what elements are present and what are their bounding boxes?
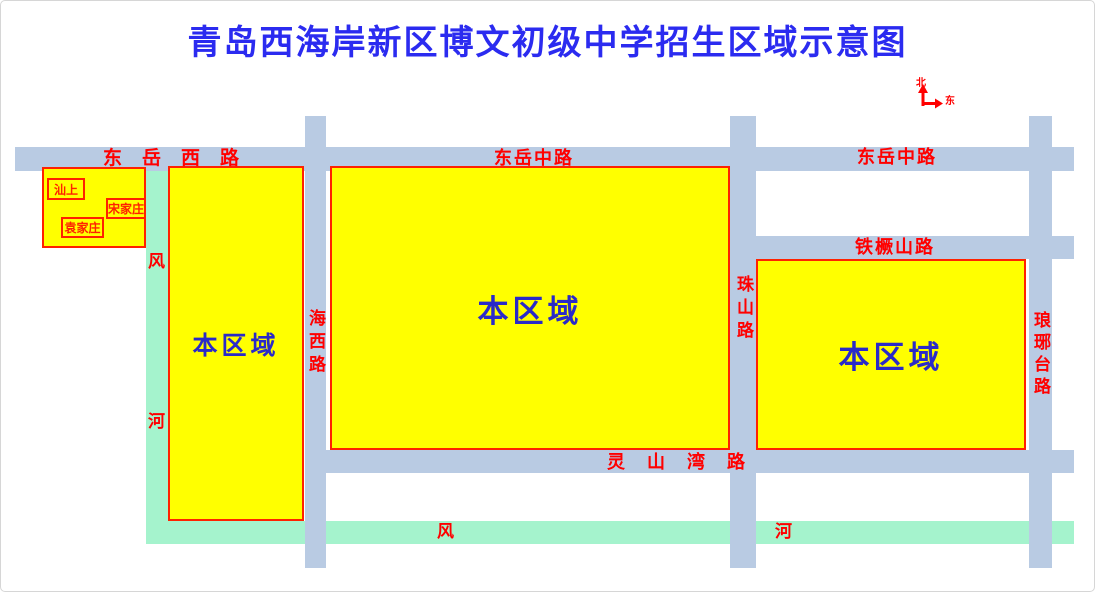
- road-label-lingshanwan: 灵山湾路: [607, 454, 767, 472]
- zone-middle-label: 本区域: [478, 286, 583, 331]
- village-shanshang-label: 汕上: [54, 181, 78, 198]
- road-label-dongyue-zhong-mid: 东岳中路: [494, 150, 574, 168]
- zone-left-label: 本区域: [192, 326, 279, 362]
- villages-cluster: 汕上 宋家庄 袁家庄: [42, 167, 146, 248]
- zone-left: 本区域: [168, 166, 304, 521]
- river-label-feng-left: 风: [148, 254, 165, 271]
- fenghe-river-horizontal: [146, 521, 1074, 544]
- road-label-langyatai: 琅琊台路: [1031, 311, 1048, 399]
- road-label-dongyue-xi: 东岳西路: [103, 149, 259, 168]
- page-title: 青岛西海岸新区博文初级中学招生区域示意图: [1, 15, 1094, 64]
- village-songjiazhuang-label: 宋家庄: [108, 200, 144, 217]
- river-label-feng-bottom: 风: [437, 524, 454, 541]
- zone-right: 本区域: [756, 259, 1026, 450]
- fenghe-river-vertical: [146, 171, 168, 544]
- road-label-dongyue-zhong-right: 东岳中路: [857, 149, 937, 167]
- village-yuanjiazhuang-label: 袁家庄: [64, 219, 100, 236]
- river-label-he-bottom: 河: [775, 524, 792, 541]
- village-songjiazhuang: 宋家庄: [106, 198, 146, 219]
- road-label-haixi: 海西路: [306, 309, 323, 378]
- village-yuanjiazhuang: 袁家庄: [61, 217, 104, 238]
- compass: 北 东: [901, 75, 961, 120]
- road-label-zhushan: 珠山路: [734, 275, 751, 344]
- village-shanshang: 汕上: [47, 178, 85, 200]
- road-label-tiejueshan: 铁橛山路: [855, 239, 935, 257]
- zone-middle: 本区域: [330, 166, 730, 450]
- zone-right-label: 本区域: [839, 332, 944, 377]
- map-canvas: 青岛西海岸新区博文初级中学招生区域示意图 北 东 本区域 本区域 本区域 汕上 …: [0, 0, 1095, 592]
- compass-east-label: 东: [945, 97, 955, 107]
- river-label-he-left: 河: [148, 414, 165, 431]
